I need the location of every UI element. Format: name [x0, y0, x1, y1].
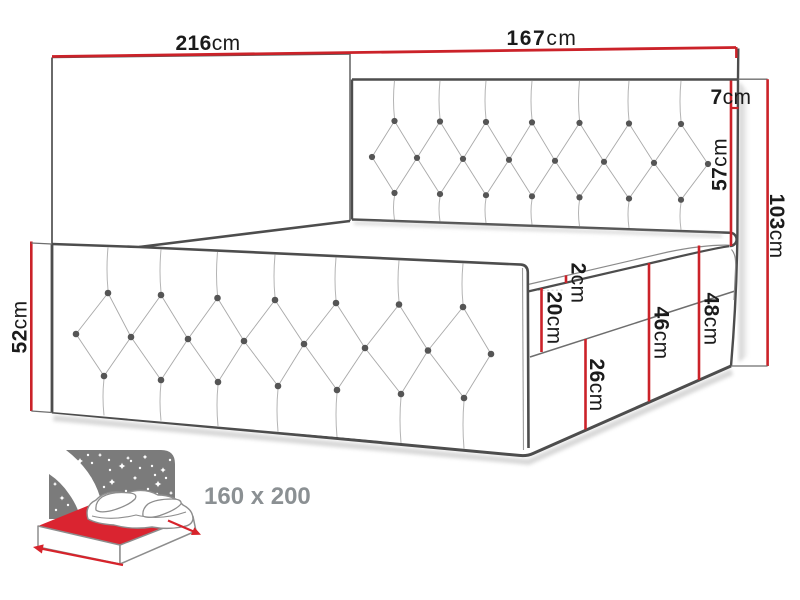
- svg-text:2cm: 2cm: [567, 263, 590, 304]
- svg-text:48cm: 48cm: [700, 293, 723, 346]
- svg-text:167cm: 167cm: [506, 27, 577, 50]
- svg-text:216cm: 216cm: [175, 32, 240, 55]
- svg-text:20cm: 20cm: [543, 292, 566, 345]
- svg-text:52cm: 52cm: [9, 301, 32, 354]
- svg-text:103cm: 103cm: [765, 193, 788, 258]
- svg-text:7cm: 7cm: [711, 86, 752, 109]
- svg-text:57cm: 57cm: [709, 138, 732, 191]
- svg-text:26cm: 26cm: [585, 359, 608, 412]
- svg-text:46cm: 46cm: [650, 307, 673, 360]
- svg-text:160 x 200: 160 x 200: [204, 483, 311, 510]
